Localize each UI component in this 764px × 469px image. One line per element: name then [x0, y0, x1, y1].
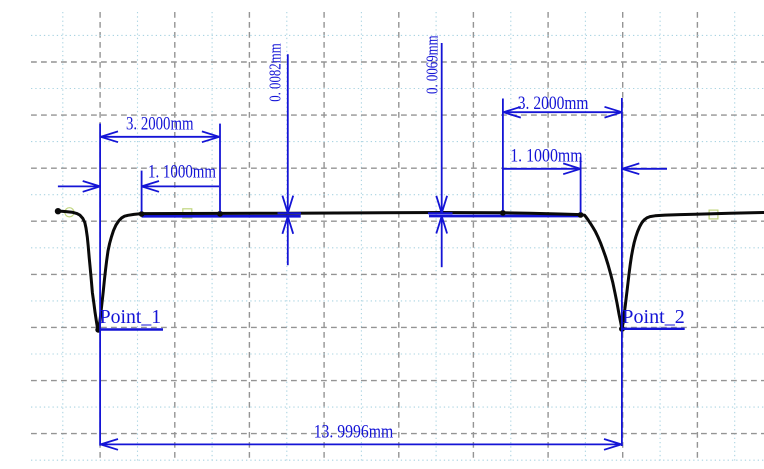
svg-text:Point_1: Point_1 — [100, 306, 162, 328]
svg-text:3. 2000mm: 3. 2000mm — [518, 93, 589, 114]
svg-text:0. 0069mm: 0. 0069mm — [423, 35, 442, 94]
svg-text:0. 0082mm: 0. 0082mm — [265, 43, 284, 102]
svg-text:1. 1000mm: 1. 1000mm — [148, 162, 216, 183]
svg-text:Point_2: Point_2 — [622, 306, 685, 328]
svg-text:3. 2000mm: 3. 2000mm — [126, 114, 194, 135]
svg-text:13. 9996mm: 13. 9996mm — [314, 421, 394, 442]
svg-text:1. 1000mm: 1. 1000mm — [510, 146, 583, 167]
